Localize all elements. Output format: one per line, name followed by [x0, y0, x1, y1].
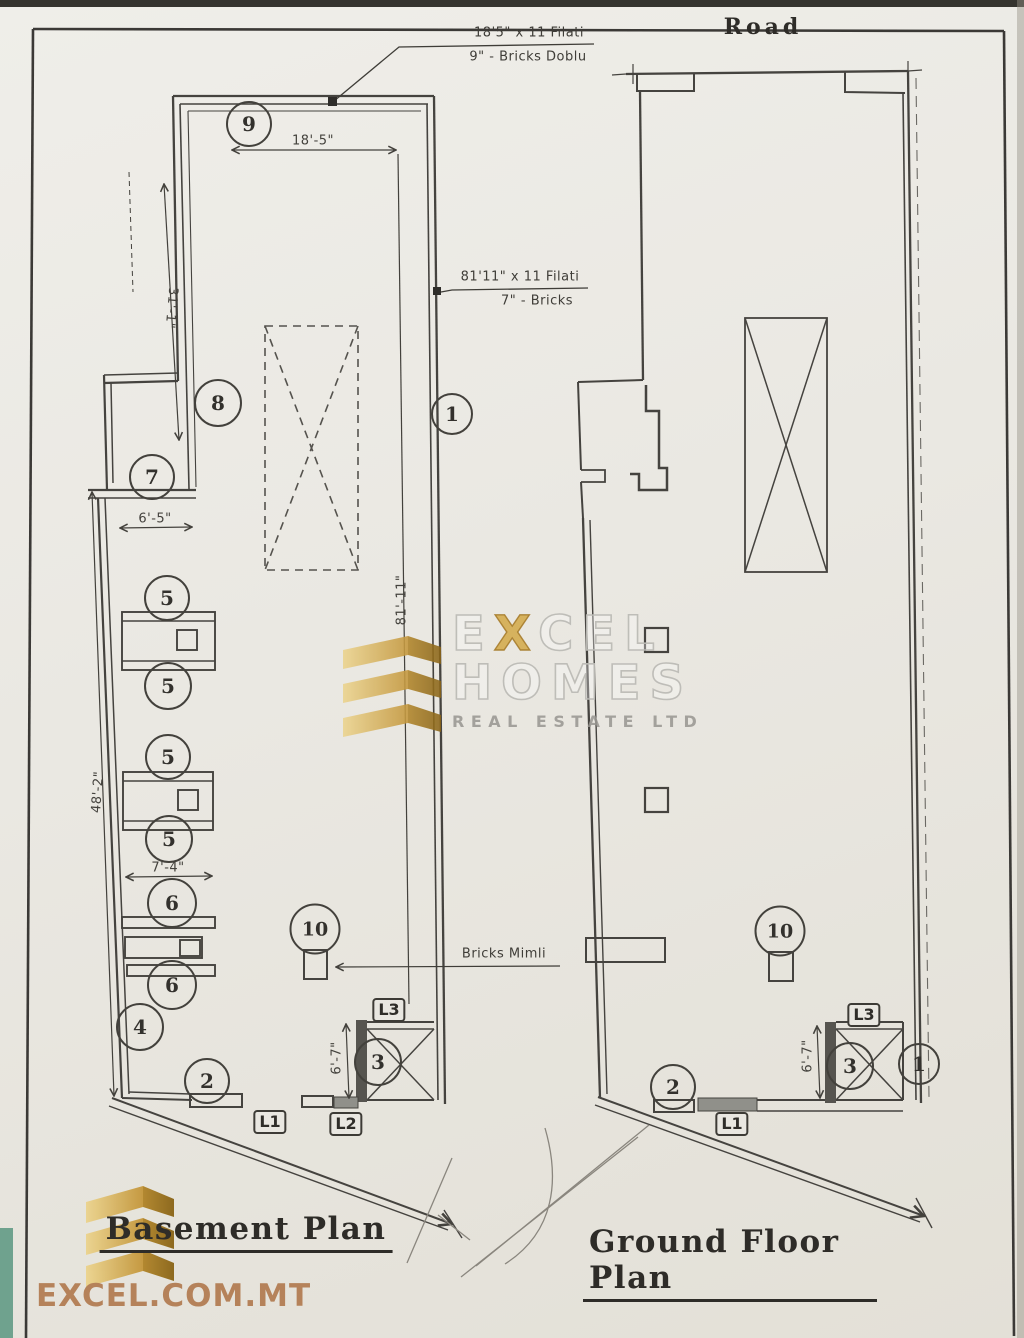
annotation-leaders [328, 44, 594, 967]
ground-walls [578, 61, 929, 1103]
dim-recess-width: 6'-5" [138, 512, 171, 527]
marker-5b: 5 [144, 662, 192, 710]
watermark-line2: HOMES [452, 659, 703, 708]
dim-lower-left-height: 48'-2" [89, 770, 107, 813]
lintel-l2-basement: L2 [329, 1112, 362, 1136]
lintel-l1-ground: L1 [715, 1112, 748, 1136]
watermark-gold-x: X [494, 606, 538, 662]
marker-2-basement: 2 [184, 1058, 230, 1104]
lintel-l3-basement: L3 [372, 998, 405, 1022]
scan-top-edge [0, 0, 1024, 7]
marker-4: 4 [116, 1003, 164, 1051]
filati-top-annotation-line2: 9" - Bricks Doblu [469, 50, 586, 65]
dim-lift-left: 6'-7" [330, 1041, 345, 1074]
scan-right-edge-shadow [1017, 0, 1024, 1338]
marker-5a: 5 [144, 575, 190, 621]
marker-10-basement: 10 [290, 904, 341, 955]
scan-background-strip [0, 1228, 13, 1338]
marker-6a: 6 [147, 878, 197, 928]
website-label: EXCEL.COM.MT [36, 1278, 311, 1314]
marker-8: 8 [194, 379, 242, 427]
basement-walls [88, 96, 445, 1104]
ground-site-boundary [595, 1097, 932, 1228]
marker-5c: 5 [145, 734, 191, 780]
watermark-line1: EXCEL [452, 610, 703, 659]
filati-top-annotation-line1: 18'5" x 11 Filati [474, 26, 584, 41]
filati-mid-annotation-line1: 81'11" x 11 Filati [461, 270, 580, 285]
marker-10-ground: 10 [755, 906, 806, 957]
filati-mid-annotation-line2: 7" - Bricks [501, 294, 573, 309]
watermark-e: E [452, 606, 494, 662]
ground-floor-plan-title: Ground Floor Plan [583, 1224, 877, 1302]
scanned-floor-plan-page: Road 18'5" x 11 Filati 9" - Bricks Doblu… [0, 0, 1024, 1338]
lintel-l3-ground: L3 [847, 1003, 880, 1027]
marker-9: 9 [226, 101, 272, 147]
dim-lift-right: 6'-7" [801, 1039, 816, 1072]
marker-6b: 6 [147, 960, 197, 1010]
lintel-l1-basement: L1 [253, 1110, 286, 1134]
ground-dimension-lines [817, 1026, 820, 1098]
marker-7: 7 [129, 454, 175, 500]
marker-3-basement: 3 [354, 1038, 402, 1086]
dim-right-height: 81'-11" [395, 575, 410, 626]
basement-dimension-lines [92, 150, 409, 1098]
marker-2-ground: 2 [650, 1064, 696, 1110]
road-label: Road [724, 14, 803, 40]
ground-shaft [745, 318, 827, 572]
watermark-cel: CEL [538, 606, 664, 662]
watermark-subtitle: REAL ESTATE LTD [452, 714, 703, 730]
excel-homes-watermark: EXCEL HOMES REAL ESTATE LTD [452, 610, 703, 730]
dim-top-width: 18'-5" [292, 134, 334, 149]
marker-3-ground: 3 [826, 1042, 874, 1090]
marker-5d: 5 [145, 815, 193, 863]
marker-1-ground: 1 [898, 1043, 940, 1085]
bricks-mimli-annotation: Bricks Mimli [462, 947, 546, 962]
marker-1-basement: 1 [431, 393, 473, 435]
basement-shaft-dashed [265, 326, 358, 570]
basement-plan-title: Basement Plan [100, 1211, 393, 1253]
excel-homes-logo-watermark [343, 636, 441, 737]
